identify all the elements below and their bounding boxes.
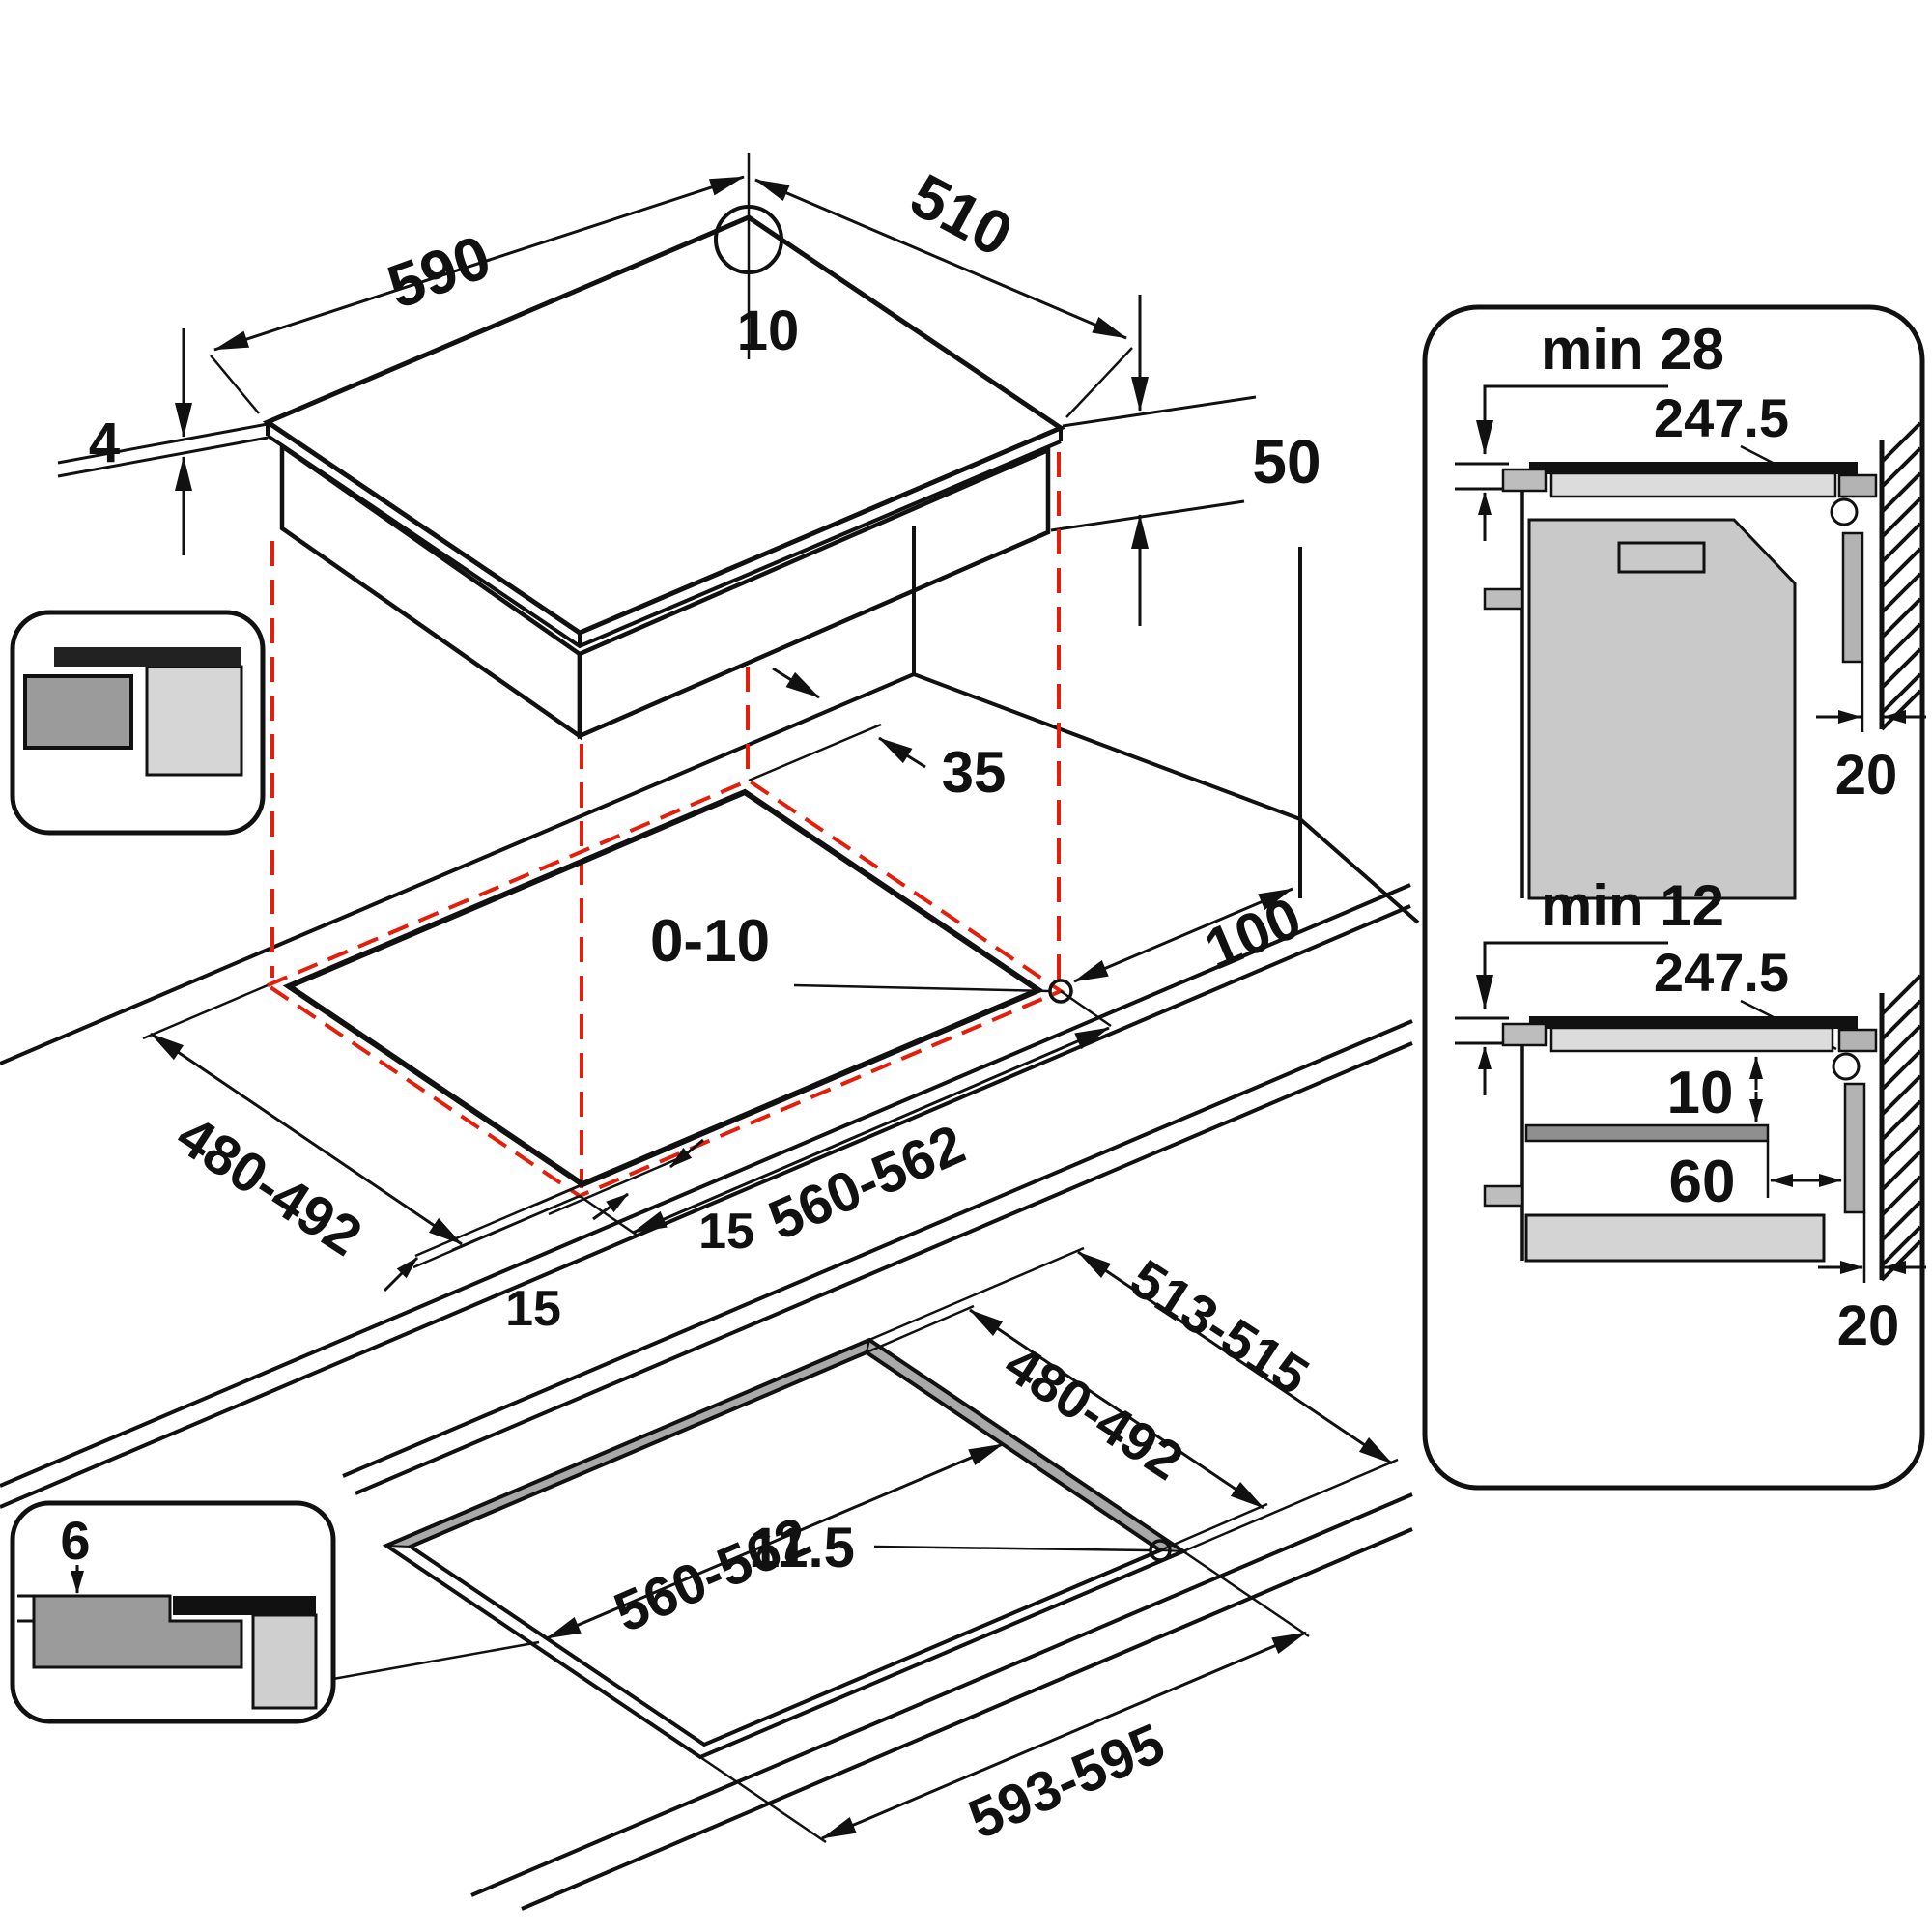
dim-60-label: 60 [1669, 1149, 1736, 1215]
hob-installation-diagram: 10 590 510 4 50 [0, 0, 1932, 1932]
hob-body-bar [1551, 1028, 1833, 1051]
cabinet-left-tab [1485, 589, 1522, 609]
dimension-590: 590 [211, 177, 744, 413]
dim-247-5-top-label: 247.5 [1654, 387, 1789, 448]
dimension-560-562-bottom: 560-562 [547, 1444, 1003, 1644]
dimension-480-492-middle: 480-492 [143, 985, 580, 1268]
section-min12-title: min 12 [1541, 873, 1724, 938]
side-sections-panel: min 28 247.5 [1425, 307, 1926, 1488]
dimension-560-562-middle: 560-562 [580, 991, 1111, 1252]
wall-spacer-bar [1843, 533, 1862, 662]
dim-20-bottom-label: 20 [1837, 1294, 1900, 1357]
projection-lines-red [272, 452, 1059, 1188]
dim-6-label: 6 [60, 1510, 90, 1571]
hob-glass-corner-edges [268, 422, 1061, 646]
oven-under-hob [1529, 520, 1795, 898]
wall-spacer-bar [1845, 1084, 1864, 1212]
detail2-hob-glass-bar [173, 1596, 316, 1615]
cabinet-left-tab [1485, 1186, 1522, 1206]
left-bracket [1503, 1024, 1546, 1045]
hob-body-left-face [282, 446, 580, 736]
hob-body-bar [1551, 473, 1835, 497]
detail2-leader-line [333, 1642, 539, 1679]
dim-247-5-bottom-label: 247.5 [1654, 942, 1789, 1003]
hob-glass-bar [1529, 462, 1858, 474]
detail1-hob-glass-bar [54, 647, 241, 667]
dim-15-right-label: 15 [698, 1204, 754, 1260]
drawer-cabinet [1526, 1215, 1824, 1261]
hob-glass-bottom-edge [268, 436, 1061, 646]
dim-480-492-bottom-label: 480-492 [994, 1332, 1194, 1492]
dimension-100: 100 [1074, 885, 1310, 982]
dim-513-515-label: 513-515 [1120, 1247, 1320, 1406]
dim-560-562-bottom-label: 560-562 [606, 1505, 819, 1644]
detail-box-surface-mount [13, 612, 263, 833]
dim-50-label: 50 [1252, 427, 1321, 497]
oven-vent [1619, 543, 1704, 572]
intermediate-shelf [1526, 1125, 1768, 1141]
dimension-510: 510 [755, 160, 1132, 417]
worktop2-back-edge-top [343, 1021, 1412, 1476]
dim-20-top-label: 20 [1835, 744, 1898, 807]
dimension-50: 50 [1051, 295, 1321, 626]
detail1-worktop-block [25, 676, 131, 748]
dim-4-label: 4 [89, 412, 120, 474]
detail1-hob-body [147, 667, 241, 775]
dim-593-595-label: 593-595 [960, 1712, 1174, 1851]
dim-15-left-label: 15 [505, 1281, 561, 1337]
right-bracket [1839, 475, 1876, 497]
diagram-canvas: 10 590 510 4 50 [0, 0, 1932, 1932]
section-min28-title: min 28 [1541, 317, 1724, 382]
right-bracket [1839, 1030, 1876, 1051]
dim-hole-label: 10 [737, 299, 800, 362]
dimension-4: 4 [58, 328, 268, 555]
detail2-hob-body [253, 1615, 316, 1708]
dim-480-492-label: 480-492 [166, 1103, 373, 1267]
dim-0-10-label: 0-10 [650, 908, 770, 975]
dim-10-label: 10 [1667, 1060, 1734, 1126]
dim-510-label: 510 [899, 160, 1023, 270]
left-bracket [1503, 469, 1546, 491]
detail-box-flush-mount: 6 [13, 1503, 539, 1721]
dim-35-label: 35 [942, 740, 1007, 805]
hob-glass-bar [1529, 1016, 1858, 1029]
dimension-15-margins: 15 15 [384, 1140, 754, 1337]
worktop2-front-edge-top [471, 1494, 1412, 1895]
dim-590-label: 590 [379, 221, 499, 322]
dim-560-562-label: 560-562 [760, 1113, 974, 1252]
